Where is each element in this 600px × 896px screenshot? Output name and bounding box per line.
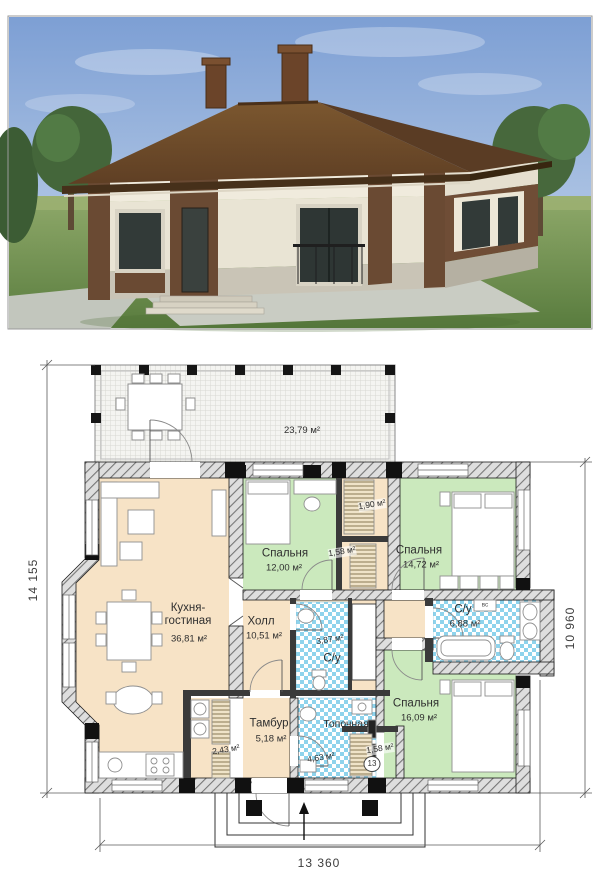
railing	[293, 244, 365, 247]
nightstand	[440, 680, 450, 694]
coffee-table	[120, 542, 142, 560]
brown-pier-right	[424, 168, 445, 288]
chair	[304, 497, 320, 511]
dining-table	[107, 602, 151, 660]
tambour-label: Тамбур	[249, 717, 288, 730]
brown-pier-mid	[368, 170, 392, 285]
dimension-right: 10 960	[564, 607, 578, 650]
terrace-area-label: 23,79 м²	[284, 420, 320, 438]
kitchen-area: 36,81 м²	[171, 635, 207, 646]
sink	[108, 758, 122, 772]
window-side	[462, 199, 490, 250]
bathroom-main-label: С/у	[454, 603, 471, 616]
bedroom1-area: 12,00 м²	[266, 564, 302, 575]
terrace	[91, 365, 395, 465]
house-render	[0, 0, 600, 340]
bedroom3-area: 16,09 м²	[401, 714, 437, 725]
duct-shaft	[352, 604, 376, 680]
hall-label: Холл	[247, 615, 274, 628]
house-project-sheet: 23,79 м² Кухня- гостиная 36,81 м² Холл 1…	[0, 0, 600, 896]
house-render-graphic	[0, 0, 600, 340]
hall-area: 10,51 м²	[246, 632, 282, 643]
stove	[146, 754, 174, 776]
sink	[523, 623, 537, 639]
round-table	[113, 686, 153, 714]
sink	[523, 604, 537, 620]
entrance-door	[182, 208, 208, 292]
dimension-bottom: 13 360	[298, 857, 341, 871]
door-mark-13: 13	[364, 756, 381, 772]
bedroom2-area: 14,72 м²	[403, 561, 439, 572]
entry-steps	[146, 296, 264, 314]
entrance-arrow	[299, 802, 309, 814]
floor-plan: 23,79 м² Кухня- гостиная 36,81 м² Холл 1…	[0, 340, 600, 896]
bedroom1-label: Спальня	[262, 547, 308, 560]
porch	[215, 793, 425, 847]
kitchen-label: Кухня- гостиная	[165, 602, 212, 628]
window-side	[498, 196, 518, 246]
dimension-left: 14 155	[27, 559, 41, 602]
bathroom-main-area: 6,88 м²	[450, 620, 481, 631]
porch-post	[246, 800, 262, 816]
bathroom-small-label: С/у	[323, 652, 340, 665]
desk	[294, 480, 336, 494]
bedroom3-label: Спальня	[393, 697, 439, 710]
porch-post	[362, 800, 378, 816]
armchair	[128, 510, 154, 534]
shelving	[212, 700, 230, 744]
bedroom2-label: Спальня	[396, 544, 442, 557]
tambour-area: 5,18 м²	[256, 735, 287, 746]
washbasin	[300, 707, 316, 721]
washbasin	[298, 609, 314, 623]
window-left	[119, 213, 161, 269]
boiler-label: Топочная	[323, 718, 369, 730]
nightstand	[440, 492, 450, 506]
tv-unit	[212, 490, 226, 536]
water-heater-label: вс	[482, 601, 489, 608]
